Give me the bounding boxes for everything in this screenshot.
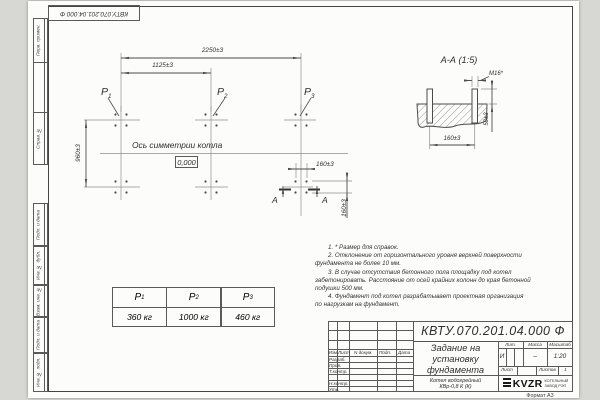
doc-number: КВТУ.070.201.04.000 Ф	[413, 325, 573, 338]
cut-letter-left: А	[272, 196, 278, 205]
dim-bolt-vertical: 160±3	[342, 192, 350, 224]
section-bolt-label: М16*	[489, 71, 503, 77]
dim-depth: 960±3	[76, 135, 84, 171]
row-razrab: Разраб.	[329, 358, 346, 363]
dim-half: 1125±3	[140, 63, 185, 69]
section-title: А-А (1:5)	[430, 56, 488, 65]
note-line: 1. * Размер для справок.	[315, 244, 567, 252]
lit-value: И	[498, 354, 506, 360]
product-line2: КВр-0,8 К (К)	[413, 385, 498, 390]
company-logo: KVZR КОТЕЛЬНЫЙ ЗАВОД РЭП	[498, 375, 573, 392]
doc-title-line2: установку	[413, 355, 498, 364]
col-podp: Подп.	[379, 351, 391, 356]
col-data: Дата	[398, 351, 410, 356]
col-izm: Изм.	[329, 351, 339, 356]
row-utv: Утв.	[329, 388, 339, 393]
load-label-p1: P1	[101, 87, 112, 100]
symmetry-axis-label: Ось симметрии котла	[132, 141, 222, 149]
note-line: 4. Фундамент под котел разрабатывает про…	[315, 293, 567, 301]
section-concrete-block	[417, 89, 487, 127]
load-table-header-p2: P2	[166, 287, 221, 308]
sheets-value: 1	[558, 368, 573, 373]
doc-title-line3: фундамента	[413, 366, 498, 375]
note-line: 2. Отклонение от горизонтального уровня …	[315, 252, 567, 260]
scale-value: 1:20	[547, 354, 573, 360]
row-tkontr: Т.контр.	[329, 370, 348, 375]
col-list: Лист	[338, 351, 350, 356]
load-table-header-p3: P3	[221, 287, 275, 308]
logo-text: KVZR	[513, 378, 543, 390]
dimension-lines	[86, 58, 492, 218]
note-line: по нагрузкам на фундамент.	[315, 301, 567, 309]
load-label-p3: P3	[304, 87, 315, 100]
note-line: подушки 500 мм.	[315, 285, 567, 293]
load-table-header-p1: P1	[112, 287, 167, 308]
drawing-sheet-photo: КВТУ.070.201.04.000 Ф Перв. примен. Спра…	[0, 0, 600, 400]
section-dim-height: 50±3	[484, 105, 492, 133]
anchor-bolt-right	[472, 89, 478, 123]
logo-sub1: КОТЕЛЬНЫЙ	[545, 379, 569, 383]
load-label-p2: P2	[217, 87, 228, 100]
mass-label: Масса	[523, 343, 547, 348]
load-value-p1: 360 кг	[112, 307, 167, 327]
title-block: Изм. Лист N докум. Подп. Дата Разраб. Пр…	[328, 321, 573, 392]
row-nkontr: Н.контр.	[329, 382, 348, 387]
dim-overall: 2250±3	[190, 48, 235, 54]
load-value-p3: 460 кг	[221, 307, 275, 327]
section-cut-marks	[279, 186, 320, 197]
col-docnum: N докум.	[354, 351, 373, 356]
logo-bars-icon	[503, 378, 511, 388]
sheet-label: Лист	[501, 368, 513, 373]
load-leader-lines	[108, 98, 311, 116]
extension-lines	[84, 53, 497, 216]
logo-sub2: ЗАВОД РЭП	[545, 384, 569, 388]
cut-letter-right: А	[322, 196, 328, 205]
note-line: фундамента не более 10 мм.	[315, 260, 567, 268]
scale-label: Масштаб	[547, 343, 573, 348]
lit-label: Лит.	[498, 343, 523, 348]
note-line: забетонировать. Расстояние от осей крайн…	[315, 277, 567, 285]
section-dim-spacing: 160±3	[438, 136, 466, 142]
mass-value: –	[523, 354, 547, 360]
doc-title-line1: Задание на	[413, 344, 498, 353]
notes-block: 1. * Размер для справок. 2. Отклонение о…	[315, 244, 567, 310]
load-table: P1 P2 P3 360 кг 1000 кг 460 кг	[112, 287, 275, 327]
anchor-bolt-left	[427, 89, 433, 123]
dim-bolt-horizontal: 160±3	[316, 162, 334, 168]
level-mark: 0,000	[175, 156, 198, 168]
load-value-p2: 1000 кг	[166, 307, 221, 327]
sheets-label: Листов	[539, 368, 556, 373]
row-prov: Пров.	[329, 364, 341, 369]
note-line: 3. В случае отсутствия бетонного пола пл…	[315, 269, 567, 277]
format-note: Формат А3	[500, 394, 580, 399]
